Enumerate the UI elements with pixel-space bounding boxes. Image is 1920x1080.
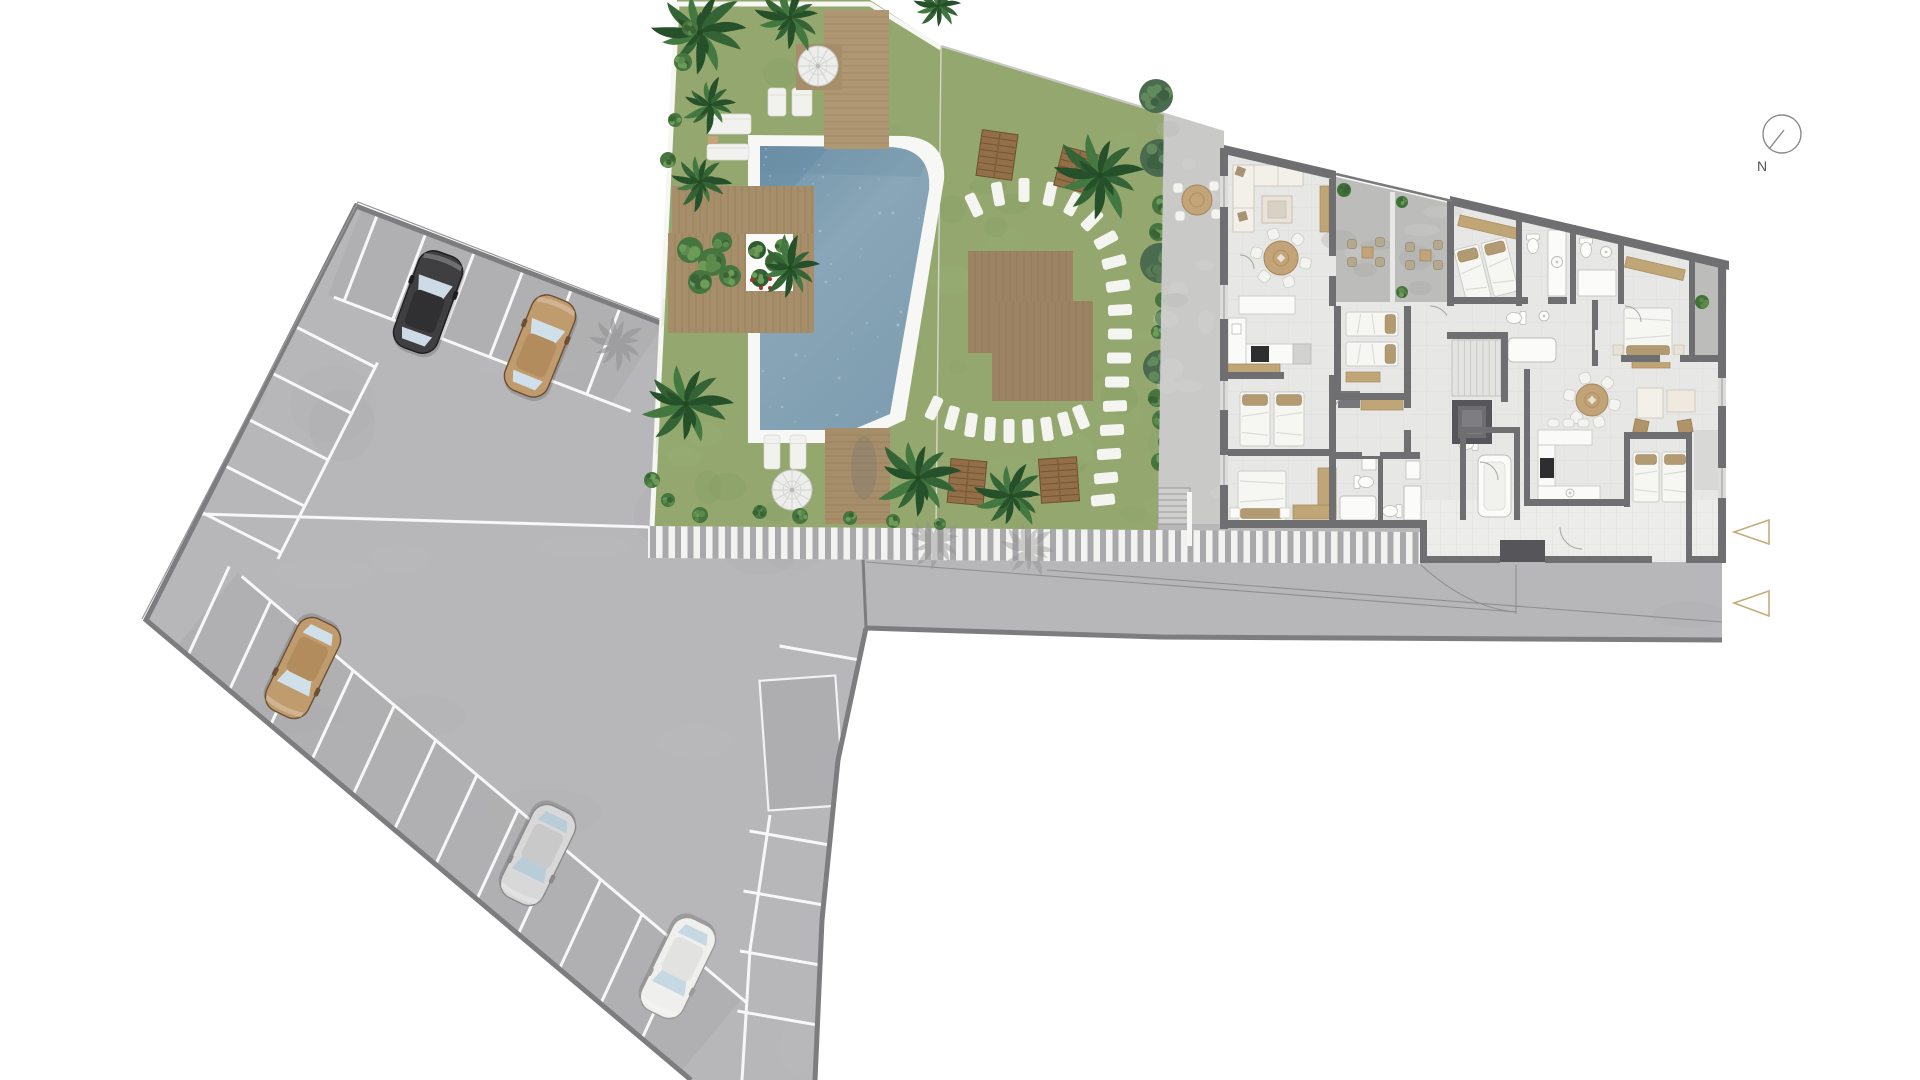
svg-text:N: N: [1757, 158, 1767, 174]
